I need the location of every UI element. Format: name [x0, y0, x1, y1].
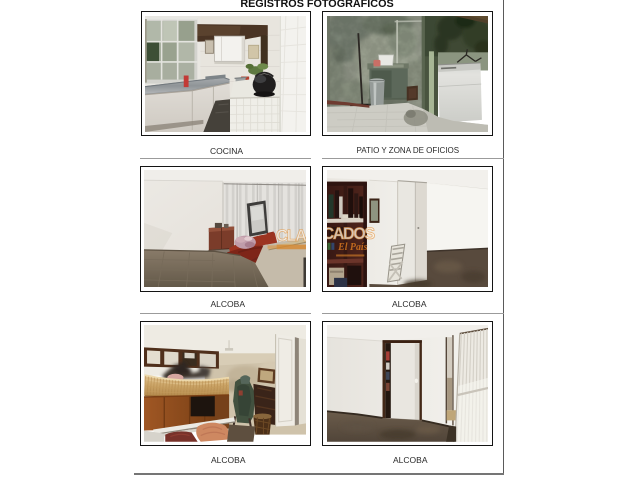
svg-text:El País: El País [337, 242, 368, 253]
svg-text:CLASIFI: CLASIFI [276, 227, 306, 245]
svg-text:CADOS: CADOS [327, 225, 375, 243]
